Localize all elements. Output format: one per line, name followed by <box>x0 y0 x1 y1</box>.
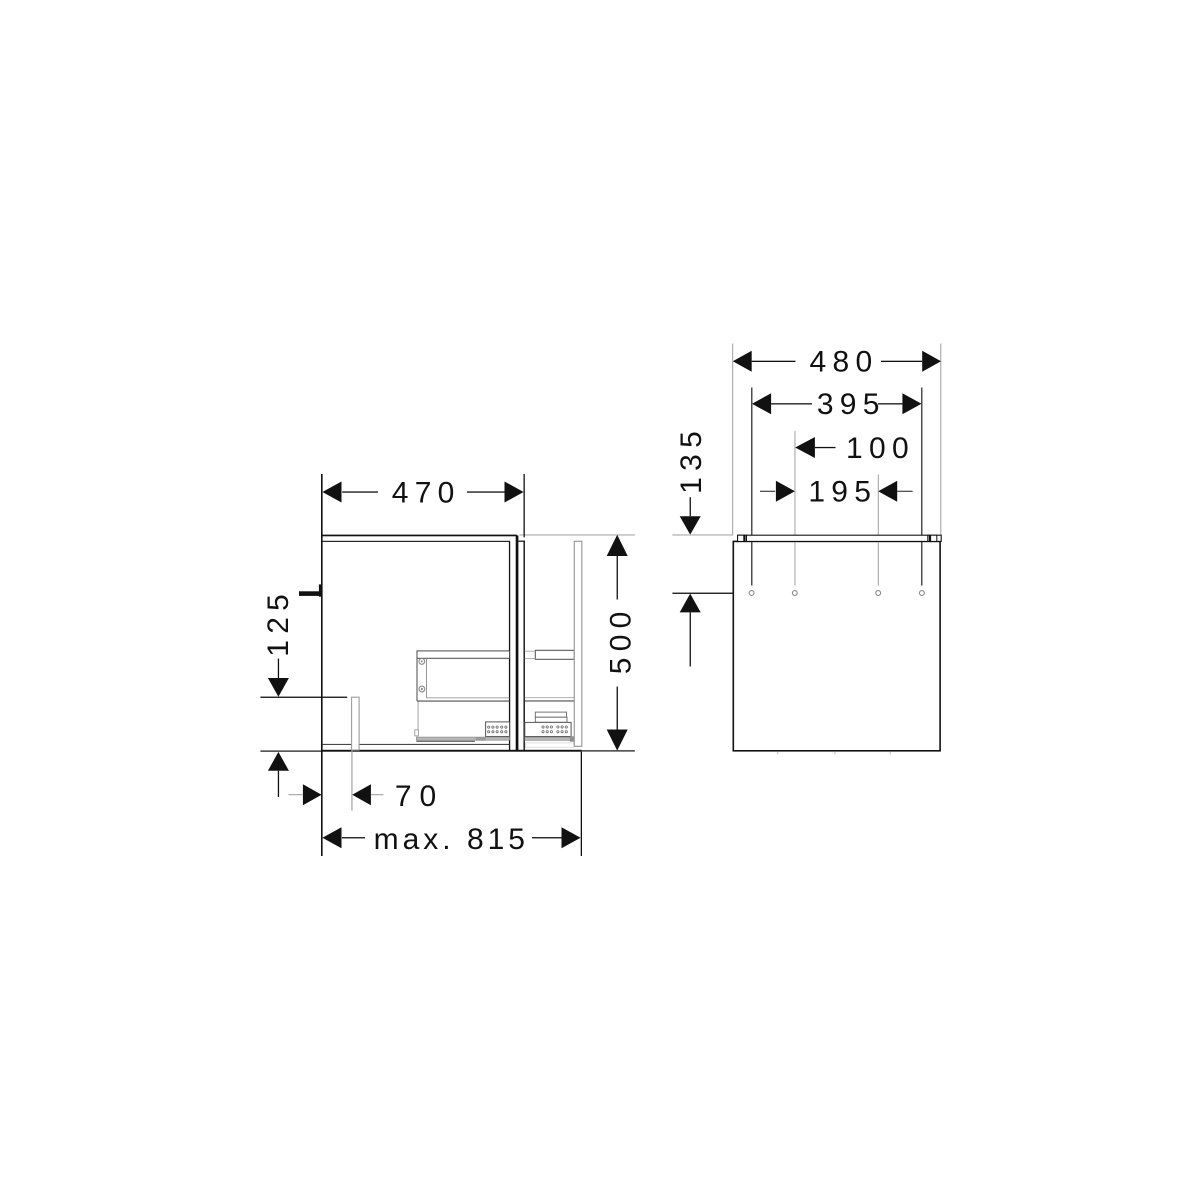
svg-text:500: 500 <box>604 605 637 674</box>
svg-text:70: 70 <box>395 780 444 813</box>
svg-text:100: 100 <box>846 432 915 465</box>
svg-text:470: 470 <box>392 476 461 509</box>
svg-text:125: 125 <box>262 588 295 657</box>
svg-text:480: 480 <box>810 346 879 379</box>
svg-text:135: 135 <box>675 425 708 494</box>
svg-text:395: 395 <box>817 388 886 421</box>
svg-text:max. 815: max. 815 <box>374 823 529 856</box>
svg-text:195: 195 <box>808 476 877 509</box>
